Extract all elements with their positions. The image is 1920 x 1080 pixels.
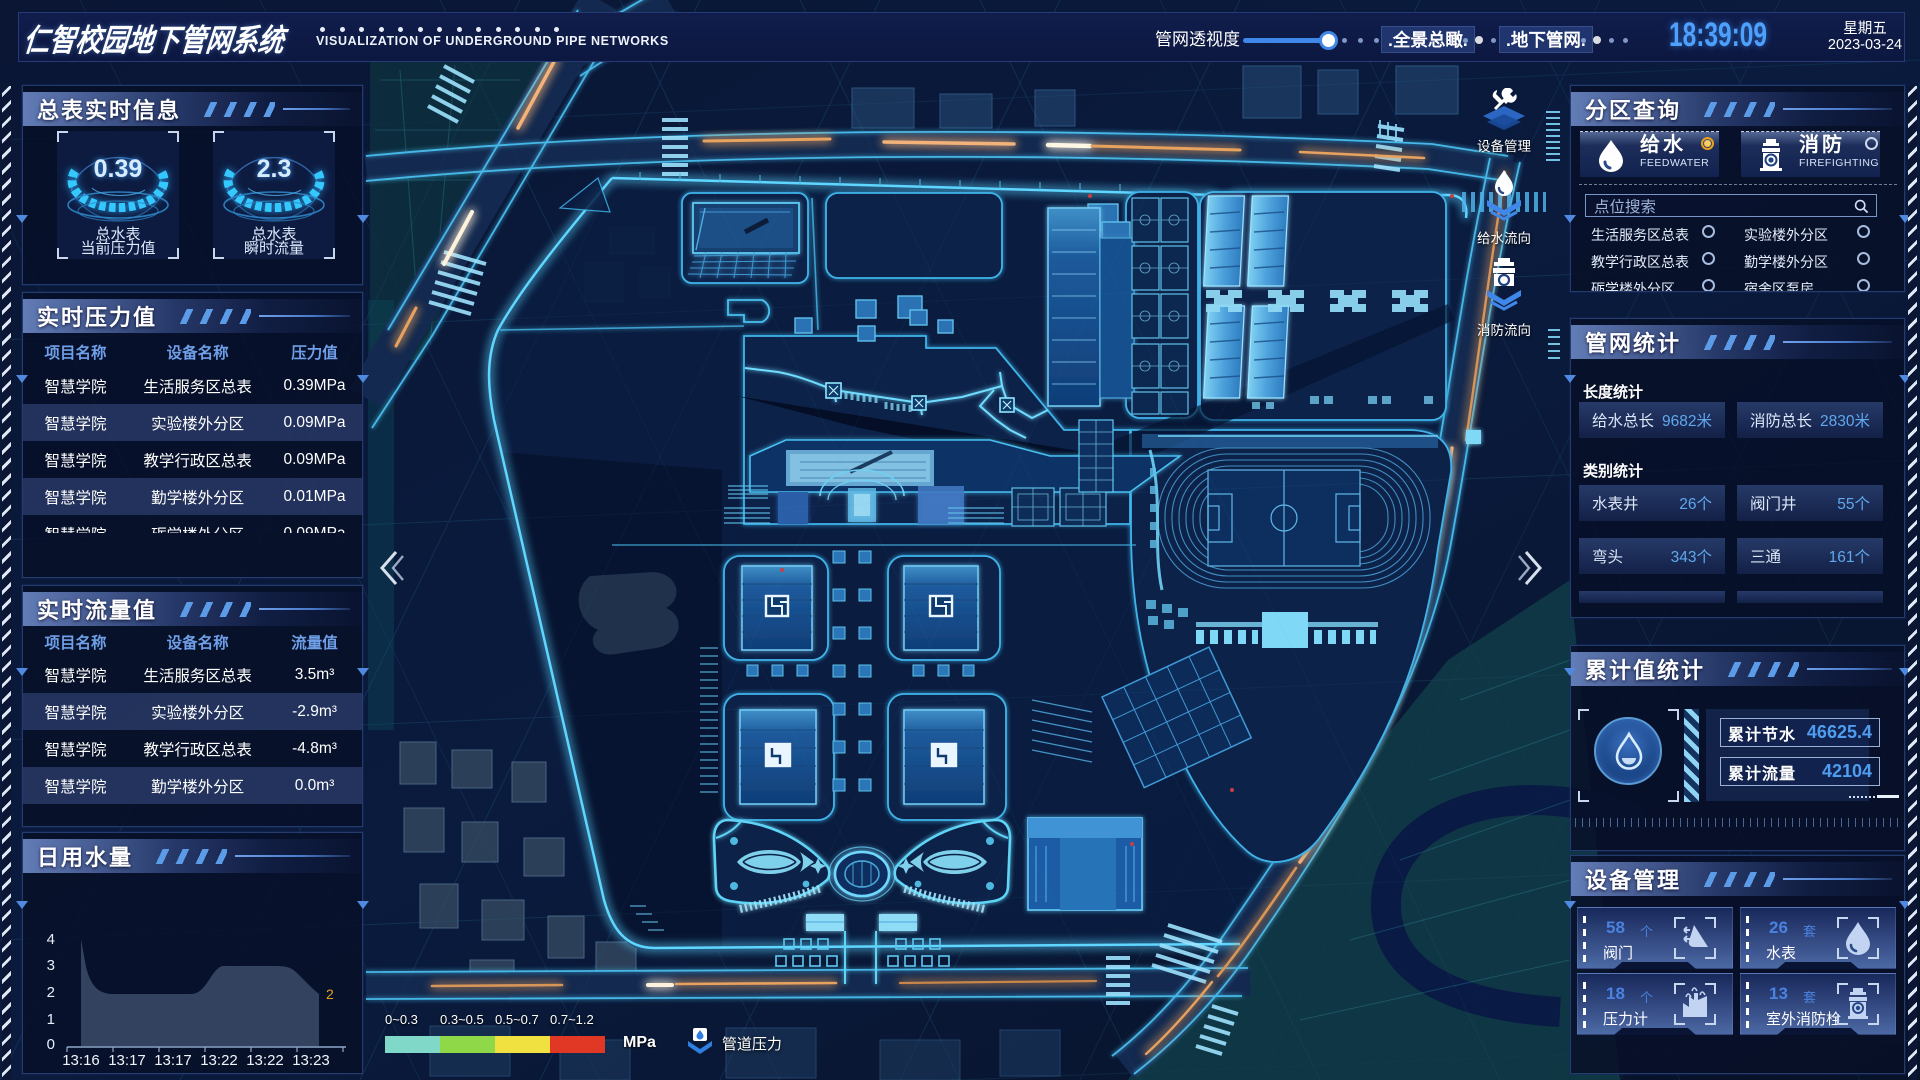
svg-text:3: 3: [47, 957, 55, 974]
svg-text:2: 2: [47, 984, 55, 1001]
svg-text:1: 1: [47, 1011, 55, 1028]
svg-text:13:16: 13:16: [62, 1052, 100, 1069]
svg-text:2: 2: [326, 986, 334, 1002]
svg-text:13:22: 13:22: [200, 1052, 238, 1069]
svg-text:13:17: 13:17: [108, 1052, 146, 1069]
svg-text:13:17: 13:17: [154, 1052, 192, 1069]
svg-text:0: 0: [47, 1036, 55, 1053]
svg-text:4: 4: [47, 931, 55, 948]
svg-text:13:23: 13:23: [292, 1052, 330, 1069]
svg-text:13:22: 13:22: [246, 1052, 284, 1069]
